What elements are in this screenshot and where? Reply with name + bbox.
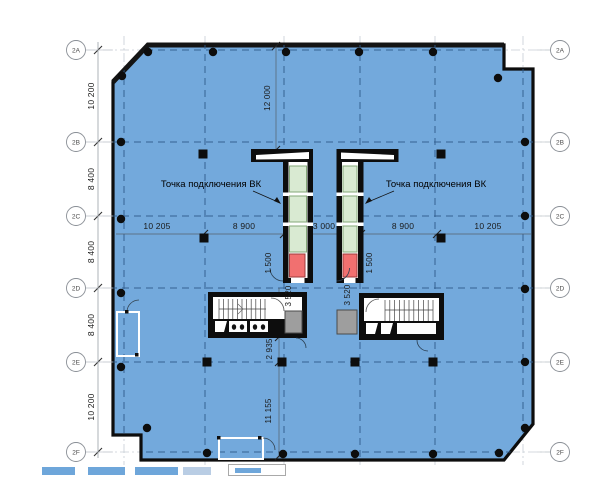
grid-bubble-label: 2E [72,360,81,367]
page: { "drawing": { "grid_rows": ["2A", "2B",… [0,0,610,473]
dim-label: 10 200 [86,82,96,109]
dim-label: 8 400 [86,314,96,336]
legend-swatch-4 [183,467,211,475]
dim-label: 12 000 [263,85,272,111]
legend-swatch-5 [228,464,286,476]
grid-bubble-label: 2B [72,140,80,147]
annotation-left: Точка подключения ВК [161,179,262,190]
grid-bubble-label: 2D [556,286,565,293]
elevator-car-green [343,196,357,222]
elevator-car-red [343,254,357,277]
dim-label: 8 900 [233,221,255,231]
grid-bubble-label: 2A [72,48,81,55]
grid-bubble-label: 2C [72,214,81,221]
dim-label: 1 500 [365,252,374,273]
service-room-gray [285,311,302,333]
left-dimension-labels: 10 200 8 400 8 400 8 400 10 200 [86,82,96,420]
dim-label: 10 200 [86,393,96,420]
grid-bubble-label: 2F [556,450,564,457]
elevator-car-green [290,226,307,252]
legend-swatch-2 [88,467,125,475]
wc-stall [229,321,247,332]
floor-slab [113,45,533,460]
elevator-car-green [343,166,357,192]
dim-label: 11 155 [264,398,273,423]
dim-label: 1 500 [264,252,273,273]
dim-label: 8 900 [392,221,414,231]
dim-label: 3 000 [313,221,335,231]
dim-label: 3 520 [343,284,352,305]
elevator-car-green [290,196,307,222]
legend-swatch-1 [42,467,75,475]
legend-swatch-3 [135,467,178,475]
wc-stall [397,323,436,334]
grid-bubbles-right: 2A 2B 2C 2D 2E 2F [537,41,570,462]
grid-bubble-label: 2A [556,48,565,55]
elevator-car-green [343,226,357,252]
grid-bubble-label: 2E [556,360,565,367]
wc-stall [250,321,268,332]
dim-label: 8 400 [86,241,96,263]
elevator-car-green [290,166,307,192]
dim-label: 10 205 [474,221,501,231]
dim-label: 3 520 [284,285,293,306]
legend-swatch-5-bar [235,468,261,473]
grid-bubble-label: 2C [556,214,565,221]
service-room-gray [337,310,357,334]
grid-bubble-label: 2D [72,286,81,293]
grid-bubble-label: 2F [72,450,80,457]
annotation-right: Точка подключения ВК [386,179,487,190]
elevator-car-red [290,254,306,277]
dim-label: 2 935 [265,338,274,359]
dim-label: 8 400 [86,168,96,190]
floor-plan-drawing: 10 205 8 900 3 000 8 900 10 205 10 200 8… [0,0,610,473]
dim-label: 10 205 [143,221,170,231]
grid-bubble-label: 2B [556,140,564,147]
